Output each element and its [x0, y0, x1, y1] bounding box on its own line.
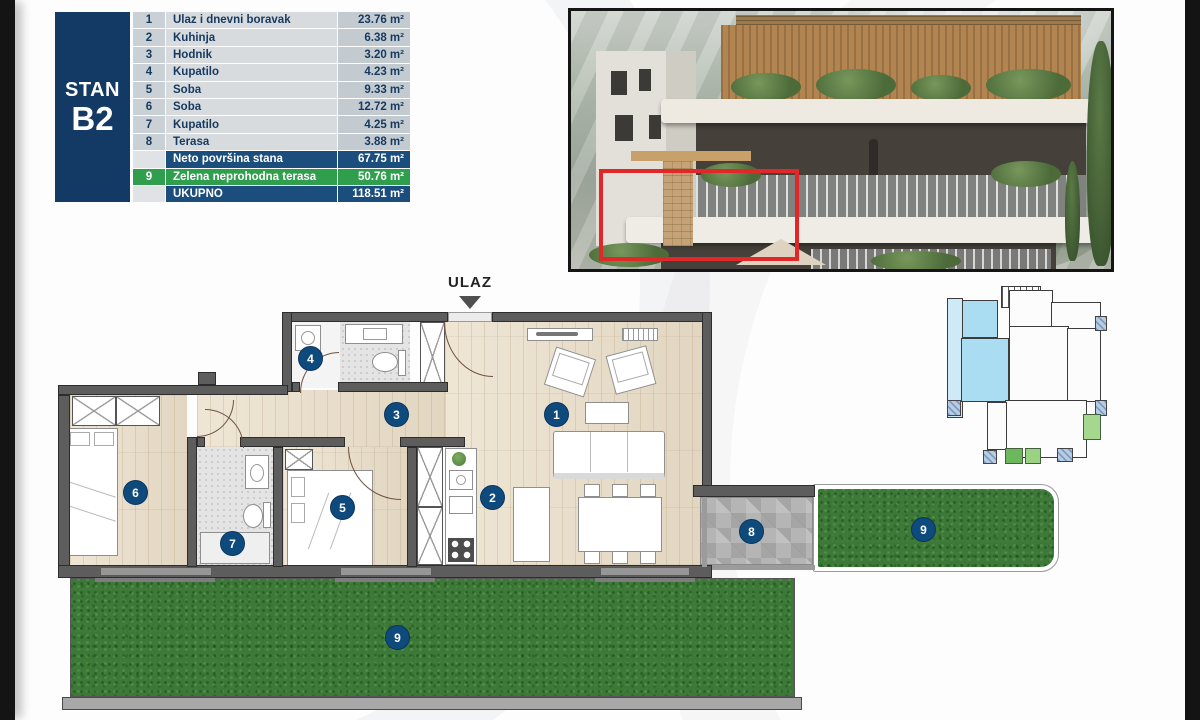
locator-unit-b2-upper	[962, 300, 998, 338]
table-row-total: UKUPNO 118.51 m²	[133, 186, 410, 202]
row-area: 118.51 m²	[338, 186, 410, 202]
row-area: 50.76 m²	[338, 169, 410, 185]
locator-garden	[1005, 448, 1023, 464]
row-label: Hodnik	[166, 47, 337, 63]
left-film-bar	[0, 0, 15, 720]
unit-highlight-box	[599, 169, 799, 261]
bathroom-counter	[345, 324, 403, 344]
terrace-edge-line	[712, 565, 815, 570]
tower-window	[615, 115, 633, 141]
unit-number: B2	[71, 102, 113, 135]
tower-window	[639, 69, 651, 91]
locator-garden	[1083, 414, 1101, 440]
row-label: Ulaz i dnevni boravak	[166, 12, 337, 28]
room-marker-9-strip: 9	[911, 517, 936, 542]
row-number: 8	[133, 134, 165, 150]
table-row: 5 Soba 9.33 m²	[133, 82, 410, 98]
tv-unit	[527, 328, 593, 341]
cypress-tree	[1087, 41, 1114, 266]
room-marker-6: 6	[123, 480, 148, 505]
room-marker-9-lawn: 9	[385, 625, 410, 650]
brochure-page: STAN B2 1 Ulaz i dnevni boravak 23.76 m²…	[0, 0, 1200, 720]
wall-segment	[338, 382, 448, 392]
window-segment	[100, 567, 212, 576]
table-row: 3 Hodnik 3.20 m²	[133, 47, 410, 63]
ground-shrubs	[871, 251, 961, 271]
row-number: 1	[133, 12, 165, 28]
bookshelf	[622, 328, 658, 341]
entrance-arrow-icon	[459, 296, 481, 309]
locator-balcony	[947, 400, 961, 416]
row-number: 6	[133, 99, 165, 115]
bed	[287, 470, 373, 567]
dining-chair	[584, 484, 600, 497]
bed	[66, 428, 118, 556]
kitchen-hob	[448, 538, 474, 562]
stan-label: STAN	[65, 79, 120, 102]
closet	[285, 449, 313, 470]
wall-segment	[197, 437, 205, 447]
toilet	[243, 504, 263, 528]
entrance-threshold	[448, 312, 492, 322]
locator-unit-b2-lower	[961, 338, 1009, 402]
row-label: Kupatilo	[166, 64, 337, 80]
locator-room	[1009, 290, 1053, 328]
row-number: 2	[133, 29, 165, 45]
dining-chair	[640, 484, 656, 497]
kitchen-sink	[449, 470, 473, 490]
locator-garden	[1025, 448, 1041, 464]
row-label: UKUPNO	[166, 186, 337, 202]
floor-slab	[661, 99, 1101, 123]
dining-table	[578, 497, 662, 552]
unit-code-block: STAN B2	[55, 12, 130, 202]
green-terrace-strip-grass	[818, 489, 1054, 567]
wall-segment	[282, 312, 448, 322]
row-number: 4	[133, 64, 165, 80]
table-row: 8 Terasa 3.88 m²	[133, 134, 410, 150]
wall-segment	[400, 437, 465, 447]
locator-balcony	[1057, 448, 1073, 462]
awning	[631, 151, 751, 161]
closet	[417, 507, 443, 565]
kitchen-plant	[452, 452, 466, 466]
wardrobe	[72, 396, 116, 426]
row-number: 5	[133, 82, 165, 98]
row-number	[133, 186, 165, 202]
wall-segment	[187, 437, 197, 567]
room-marker-3: 3	[384, 402, 409, 427]
room-marker-5: 5	[330, 495, 355, 520]
room-marker-7: 7	[220, 531, 245, 556]
closet	[417, 447, 443, 507]
kitchen-island	[513, 487, 550, 562]
wardrobe	[116, 396, 160, 426]
sink	[245, 455, 269, 489]
sofa	[553, 431, 665, 479]
row-area: 9.33 m²	[338, 82, 410, 98]
entrance-label: ULAZ	[430, 274, 510, 291]
dining-chair	[584, 551, 600, 564]
wall-terrace-top	[693, 485, 815, 497]
row-label: Kupatilo	[166, 116, 337, 132]
table-row: 6 Soba 12.72 m²	[133, 99, 410, 115]
toilet-tank	[263, 502, 271, 528]
wall-segment	[407, 447, 417, 567]
row-area: 3.20 m²	[338, 47, 410, 63]
locator-balcony	[1095, 316, 1107, 331]
green-terrace-lawn	[70, 578, 795, 697]
wall-segment	[198, 372, 216, 385]
lawn-edge-strip	[62, 697, 802, 710]
room-marker-4: 4	[298, 346, 323, 371]
balcony-plants	[991, 161, 1061, 187]
window-segment	[600, 567, 690, 576]
row-number	[133, 151, 165, 167]
room-marker-2: 2	[480, 485, 505, 510]
table-row: 7 Kupatilo 4.25 m²	[133, 116, 410, 132]
wall-segment	[273, 447, 283, 567]
row-label: Kuhinja	[166, 29, 337, 45]
locator-room	[987, 402, 1007, 450]
room-marker-8: 8	[739, 519, 764, 544]
room-marker-1: 1	[544, 402, 569, 427]
balcony-plants	[731, 73, 801, 101]
row-area: 23.76 m²	[338, 12, 410, 28]
row-area: 12.72 m²	[338, 99, 410, 115]
row-number: 9	[133, 169, 165, 185]
table-row: 4 Kupatilo 4.23 m²	[133, 64, 410, 80]
row-area: 4.23 m²	[338, 64, 410, 80]
row-label: Neto površina stana	[166, 151, 337, 167]
toilet	[372, 352, 398, 372]
locator-room	[1009, 326, 1069, 402]
row-label: Terasa	[166, 134, 337, 150]
row-label: Soba	[166, 99, 337, 115]
wall-segment	[492, 312, 712, 322]
tower-window	[649, 115, 661, 139]
dining-chair	[612, 484, 628, 497]
cypress-tree	[1065, 161, 1080, 261]
row-area: 6.38 m²	[338, 29, 410, 45]
balcony-plants	[816, 69, 896, 101]
table-row-green-terrace: 9 Zelena neprohodna terasa 50.76 m²	[133, 169, 410, 185]
unit-locator-plan	[943, 280, 1143, 482]
table-row: 2 Kuhinja 6.38 m²	[133, 29, 410, 45]
wall-segment	[58, 395, 70, 578]
locator-room	[1067, 328, 1101, 402]
balcony-plants	[911, 75, 971, 101]
wall-segment	[282, 312, 292, 392]
tower-window	[611, 71, 627, 95]
dining-chair	[612, 551, 628, 564]
dining-chair	[640, 551, 656, 564]
window-segment	[340, 567, 432, 576]
coffee-table	[585, 402, 629, 424]
table-row-net-area: Neto površina stana 67.75 m²	[133, 151, 410, 167]
area-table: 1 Ulaz i dnevni boravak 23.76 m² 2 Kuhin…	[133, 12, 410, 202]
wall-segment	[292, 382, 300, 392]
row-number: 7	[133, 116, 165, 132]
row-area: 4.25 m²	[338, 116, 410, 132]
balcony-plants	[986, 69, 1071, 101]
glass-wall-terrace	[702, 497, 707, 567]
row-label: Zelena neprohodna terasa	[166, 169, 337, 185]
right-film-bar	[1185, 0, 1200, 720]
person-silhouette	[869, 139, 878, 175]
toilet-tank	[398, 350, 406, 376]
row-area: 3.88 m²	[338, 134, 410, 150]
row-number: 3	[133, 47, 165, 63]
building-render	[568, 8, 1114, 272]
row-area: 67.75 m²	[338, 151, 410, 167]
kitchen-fridge	[449, 496, 473, 514]
table-row: 1 Ulaz i dnevni boravak 23.76 m²	[133, 12, 410, 28]
row-label: Soba	[166, 82, 337, 98]
wall-segment	[240, 437, 345, 447]
locator-balcony	[983, 450, 997, 464]
wall-segment	[58, 385, 288, 395]
wall-segment	[702, 312, 712, 497]
